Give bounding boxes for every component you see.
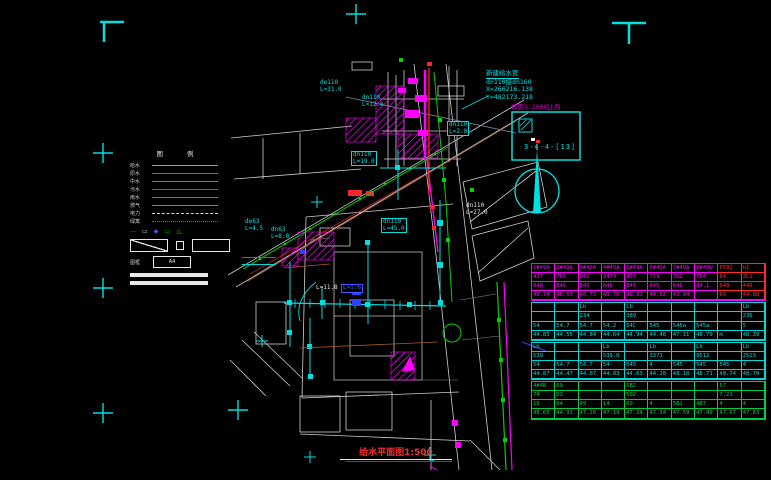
table-cell: D3 — [555, 391, 578, 400]
table-cell — [742, 391, 765, 400]
table-cell: 846 — [672, 282, 695, 291]
table-cell: 54.7 — [579, 361, 602, 370]
table-cell: 4 — [742, 400, 765, 409]
table-cell: 236 — [742, 312, 765, 321]
magenta-sample-line — [242, 257, 276, 258]
table-cell: 762 — [672, 273, 695, 282]
table-cell: 449 — [742, 282, 765, 291]
table-cell: Lb — [648, 343, 671, 352]
legend-row: 污水 — [130, 185, 230, 193]
tree-circle — [443, 324, 461, 342]
table-cell: 389 — [625, 312, 648, 321]
table-cell — [602, 391, 625, 400]
legend-lines: 给水原水中水污水雨水燃气电力绿篱 — [130, 161, 230, 225]
table-cell: 3#49A — [579, 264, 602, 273]
table-cell — [602, 303, 625, 312]
pipe-label: de63 L=4.5 — [245, 219, 263, 232]
table-cell: 47.34 — [648, 409, 671, 418]
cyan-sample-line — [242, 264, 276, 265]
table-cell: P592 — [718, 264, 741, 273]
table-cell: 69 — [718, 291, 741, 300]
table-cell: 47.67 — [718, 409, 741, 418]
table-cell: 94 — [555, 400, 578, 409]
table-cell: 848 — [532, 282, 555, 291]
table-cell — [532, 312, 555, 321]
table-cell — [532, 303, 555, 312]
table-cell: 539.0 — [602, 352, 625, 361]
table-cell: 47.63 — [742, 409, 765, 418]
table-cell: 545 — [695, 361, 718, 370]
table-cell — [695, 291, 718, 300]
legend-line-sample — [152, 173, 218, 174]
table-cell: 765 — [555, 273, 578, 282]
table-cell: 49 — [579, 400, 602, 409]
table-cell: 848 — [625, 282, 648, 291]
pipe-label: dn110 L=19.0 — [351, 151, 377, 166]
table-cell — [672, 382, 695, 391]
table-cell — [625, 343, 648, 352]
table-cell — [555, 312, 578, 321]
table-cell: 57 — [718, 382, 741, 391]
table-cell: 846 — [602, 282, 625, 291]
table-cell: 54.7 — [555, 361, 578, 370]
table-cell: 44.63 — [625, 370, 648, 379]
sheet-title: 给水平面图1:500 — [340, 445, 452, 462]
table-section: LbLbLbLbLb539539.03371851225135454.754.7… — [531, 342, 766, 380]
legend-symbol-row: —▭◆▭么 — [130, 227, 230, 236]
legend: 图 例 给水原水中水污水雨水燃气电力绿篱 —▭◆▭么 图框 A4 — [130, 148, 230, 289]
table-cell — [555, 343, 578, 352]
table-cell: 43.84 — [672, 291, 695, 300]
table-cell — [672, 303, 695, 312]
table-cell: 5B2 — [625, 382, 648, 391]
table-cell — [672, 312, 695, 321]
legend-building-row — [130, 239, 230, 252]
legend-row-label: 给水 — [130, 162, 152, 169]
table-cell: 539 — [532, 352, 555, 361]
table-cell: 44.83 — [602, 370, 625, 379]
legend-line-sample — [152, 205, 218, 206]
table-cell: 5 — [742, 322, 765, 331]
table-cell — [648, 382, 671, 391]
blue-marks — [300, 250, 546, 351]
legend-row: 绿篱 — [130, 217, 230, 225]
table-cell — [555, 303, 578, 312]
legend-row-label: 绿篱 — [130, 218, 152, 225]
table-cell — [625, 352, 648, 361]
table-cell: 84 — [718, 273, 741, 282]
table-row: 1#49A2#49A3#49A4#49A5#49A6#49A7#49A8#49W… — [532, 264, 765, 273]
table-row: 48.6544.9147.2647.1947.2447.3447.5947.49… — [532, 409, 765, 418]
table-cell — [555, 352, 578, 361]
table-cell: b1 — [742, 264, 765, 273]
table-cell: 502 — [625, 391, 648, 400]
table-cell — [695, 391, 718, 400]
table-cell: 69 — [555, 382, 578, 391]
table-cell: Lb — [532, 343, 555, 352]
table-cell: 3371 — [648, 352, 671, 361]
table-cell: 845 — [579, 282, 602, 291]
pipe-label: de110 L=31.0 — [320, 80, 342, 93]
table-cell: 69 — [625, 400, 648, 409]
keep-building-symbol — [192, 239, 230, 252]
table-row: 234389236 — [532, 312, 765, 321]
table-row: 44.8744.4744.0744.8344.6344.1048.1048.71… — [532, 370, 765, 379]
table-cell: 54C — [625, 322, 648, 331]
legend-symbol: ▭ — [164, 228, 170, 235]
table-cell: 47.26 — [579, 409, 602, 418]
table-row: LbLbLbLbLb — [532, 343, 765, 352]
legend-symbol: ▭ — [142, 228, 148, 235]
table-cell: 47.49 — [695, 409, 718, 418]
table-cell: 846 — [555, 282, 578, 291]
title-underline — [340, 459, 452, 460]
table-cell: 44.64 — [602, 331, 625, 340]
legend-row-label: 雨水 — [130, 194, 152, 201]
legend-symbol: — — [130, 228, 136, 235]
detail-box — [512, 112, 580, 160]
table-cell: 48.74 — [718, 370, 741, 379]
pipe-label: dn63 L=8.0 — [271, 227, 289, 240]
table-cell: Lb — [579, 303, 602, 312]
legend-row: 雨水 — [130, 193, 230, 201]
table-cell: 44.88 — [742, 291, 765, 300]
coordinate-annotation: 新建给水管 dn110接dn160 X=266216.138 Y=482173.… — [486, 70, 533, 101]
table-row: 5454.754.754.254C545545a545a5 — [532, 322, 765, 331]
table-cell: 8512 — [695, 352, 718, 361]
table-cell — [672, 343, 695, 352]
table-cell: 54 — [602, 361, 625, 370]
table-cell: 44.10 — [648, 370, 671, 379]
table-cell — [718, 322, 741, 331]
table-cell: 3479 — [602, 273, 625, 282]
table-row: 199449146945B14B744 — [532, 400, 765, 409]
legend-row: 电力 — [130, 209, 230, 217]
table-cell: 842 — [579, 273, 602, 282]
table-cell: 7#49A — [672, 264, 695, 273]
table-cell — [718, 303, 741, 312]
table-cell: 648 — [718, 282, 741, 291]
frame-corner-marks — [100, 22, 646, 44]
table-cell: 759 — [648, 273, 671, 282]
pipe-label: dn110 L=12.6 — [362, 95, 384, 108]
table-cell: 44.55 — [555, 331, 578, 340]
table-row: 74D35027.21 — [532, 391, 765, 400]
table-cell — [579, 343, 602, 352]
table-cell — [602, 312, 625, 321]
table-section: 1#49A2#49A3#49A4#49A5#49A6#49A7#49A8#49W… — [531, 263, 766, 301]
table-cell: 74 — [532, 391, 555, 400]
table-cell: 47.19 — [602, 409, 625, 418]
table-cell — [579, 391, 602, 400]
legend-symbol: 么 — [176, 227, 182, 236]
table-cell: 4 — [742, 361, 765, 370]
table-cell: 47.24 — [625, 409, 648, 418]
table-cell: 48.63 — [555, 291, 578, 300]
table-cell — [672, 391, 695, 400]
cad-canvas[interactable]: 新建给水管 dn110接dn160 X=266216.138 Y=482173.… — [0, 0, 771, 480]
table-cell: 44.91 — [555, 409, 578, 418]
table-cell: m — [718, 331, 741, 340]
table-cell: 7.21 — [718, 391, 741, 400]
scale-bar — [130, 273, 208, 277]
table-cell: 44.48 — [648, 331, 671, 340]
table-cell: 4B7 — [695, 400, 718, 409]
table-cell: Lb — [742, 303, 765, 312]
table-cell: 545a — [695, 322, 718, 331]
table-cell — [718, 343, 741, 352]
table-cell: 54 — [532, 322, 555, 331]
pipe-label: dn110 L=45.0 — [381, 218, 407, 233]
table-cell: 2#49A — [555, 264, 578, 273]
table-cell: 1#49A — [532, 264, 555, 273]
legend-row: 原水 — [130, 169, 230, 177]
table-cell — [648, 303, 671, 312]
table-cell: 437 — [532, 273, 555, 282]
pipe-label: L=11.8 — [316, 285, 338, 292]
pipe-label: L=5.6 — [341, 284, 363, 293]
table-cell: Lb — [602, 343, 625, 352]
table-cell: 545 — [648, 322, 671, 331]
table-cell: 234 — [579, 312, 602, 321]
table-cell: 2513 — [742, 352, 765, 361]
legend-line-sample — [152, 189, 218, 190]
table-row: 48.7448.6348.7348.7648.8144.8243.846944.… — [532, 291, 765, 300]
pipe-label: dn110 L=27.0 — [466, 203, 488, 216]
data-table: 1#49A2#49A3#49A4#49A5#49A6#49A7#49A8#49W… — [531, 263, 766, 421]
table-cell: 48.10 — [672, 370, 695, 379]
table-cell: 48.71 — [695, 370, 718, 379]
table-cell — [742, 382, 765, 391]
table-cell: 4#49A — [602, 264, 625, 273]
table-cell — [695, 382, 718, 391]
table-cell: 48.73 — [579, 291, 602, 300]
table-cell: 764 — [695, 273, 718, 282]
table-section: 4#4B695B25774D35027.21199449146945B14B74… — [531, 381, 766, 419]
table-cell: 47.11 — [672, 331, 695, 340]
demolition-hatch-areas — [282, 86, 438, 380]
title-underline-accent — [346, 461, 452, 462]
table-cell: 497 — [625, 273, 648, 282]
demolish-building-symbol — [130, 239, 168, 252]
table-cell: 54.2 — [602, 322, 625, 331]
legend-symbol: ◆ — [154, 228, 159, 235]
legend-line-sample — [152, 181, 218, 182]
table-cell: 48.39 — [742, 331, 765, 340]
table-cell — [718, 312, 741, 321]
table-cell: 14 — [602, 400, 625, 409]
table-row: 4#4B695B257 — [532, 382, 765, 391]
table-row: 44.8544.5544.8444.6444.9444.4847.1148.79… — [532, 331, 765, 340]
table-cell: 4 — [648, 361, 671, 370]
table-cell: 545 — [718, 361, 741, 370]
table-cell: 48.79 — [742, 370, 765, 379]
table-cell: 545a — [672, 322, 695, 331]
paper-box: A4 — [153, 256, 191, 268]
table-cell: 4#4B — [532, 382, 555, 391]
table-cell: Lb — [695, 343, 718, 352]
table-cell: 44.94 — [625, 331, 648, 340]
table-cell: 545 — [625, 361, 648, 370]
scale-bar — [130, 281, 208, 285]
legend-line-sample — [152, 213, 218, 214]
table-cell: 48.81 — [625, 291, 648, 300]
legend-row-label: 中水 — [130, 178, 152, 185]
table-cell: 545 — [672, 361, 695, 370]
legend-row: 中水 — [130, 177, 230, 185]
table-cell: 5#49A — [625, 264, 648, 273]
legend-line-sample — [152, 197, 218, 198]
paper-label: 图框 — [130, 259, 148, 266]
table-cell: 4 — [718, 400, 741, 409]
table-cell — [695, 303, 718, 312]
legend-line-sample — [152, 165, 218, 166]
table-cell — [695, 312, 718, 321]
pipe-label: dn110 L=2.0 — [447, 121, 469, 136]
table-cell: 44.84 — [579, 331, 602, 340]
legend-scale-bars — [130, 273, 230, 285]
table-row: 5454.754.75454545455455454 — [532, 361, 765, 370]
table-cell — [648, 391, 671, 400]
table-cell: 48.74 — [532, 291, 555, 300]
table-cell: 44.47 — [555, 370, 578, 379]
table-cell: 845 — [648, 282, 671, 291]
table-cell: 6#49A — [648, 264, 671, 273]
legend-paper-row: 图框 A4 — [130, 256, 230, 268]
table-cell: 54.7 — [555, 322, 578, 331]
table-cell: 3L1 — [742, 273, 765, 282]
legend-title: 图 例 — [130, 148, 230, 158]
legend-row: 给水 — [130, 161, 230, 169]
table-row: 4377658423479497759762764843L1 — [532, 273, 765, 282]
table-cell: 5B1 — [672, 400, 695, 409]
small-building-symbol — [176, 241, 184, 250]
table-row: 539539.0337185122513 — [532, 352, 765, 361]
table-cell: 48.79 — [695, 331, 718, 340]
table-cell: 4 — [648, 400, 671, 409]
table-row: LbLbLb — [532, 303, 765, 312]
legend-row: 燃气 — [130, 201, 230, 209]
table-cell: 44.82 — [648, 291, 671, 300]
table-cell: 48.65 — [532, 409, 555, 418]
table-cell — [672, 352, 695, 361]
table-cell: 54 — [532, 361, 555, 370]
table-cell: 84.1 — [695, 282, 718, 291]
table-row: 84884684584684884584684.1648449 — [532, 282, 765, 291]
annotation-y: Y=482173.218 — [486, 93, 533, 101]
detail-box-caption: 详图1:2000比例 — [511, 101, 560, 111]
table-cell — [718, 352, 741, 361]
table-cell: 44.85 — [532, 331, 555, 340]
cyan-fittings — [287, 165, 443, 461]
table-cell — [648, 312, 671, 321]
table-cell: 8#49W — [695, 264, 718, 273]
legend-line-samples — [242, 257, 276, 271]
table-cell: 44.87 — [532, 370, 555, 379]
table-cell: 19 — [532, 400, 555, 409]
table-cell: 44.07 — [579, 370, 602, 379]
legend-row-label: 燃气 — [130, 202, 152, 209]
legend-row-label: 电力 — [130, 210, 152, 217]
table-cell: Lb — [625, 303, 648, 312]
table-cell — [579, 382, 602, 391]
legend-row-label: 原水 — [130, 170, 152, 177]
table-cell — [602, 382, 625, 391]
legend-line-sample — [152, 221, 218, 222]
table-section: LbLbLb2343892365454.754.754.254C545545a5… — [531, 302, 766, 340]
sheet-title-text: 给水平面图1:500 — [340, 445, 452, 458]
table-cell: 54.7 — [579, 322, 602, 331]
legend-row-label: 污水 — [130, 186, 152, 193]
detail-box-code: 3-4-4-[13] — [524, 143, 576, 151]
table-cell: 47.59 — [672, 409, 695, 418]
table-cell: Lb — [742, 343, 765, 352]
table-cell: 48.76 — [602, 291, 625, 300]
table-cell — [579, 352, 602, 361]
